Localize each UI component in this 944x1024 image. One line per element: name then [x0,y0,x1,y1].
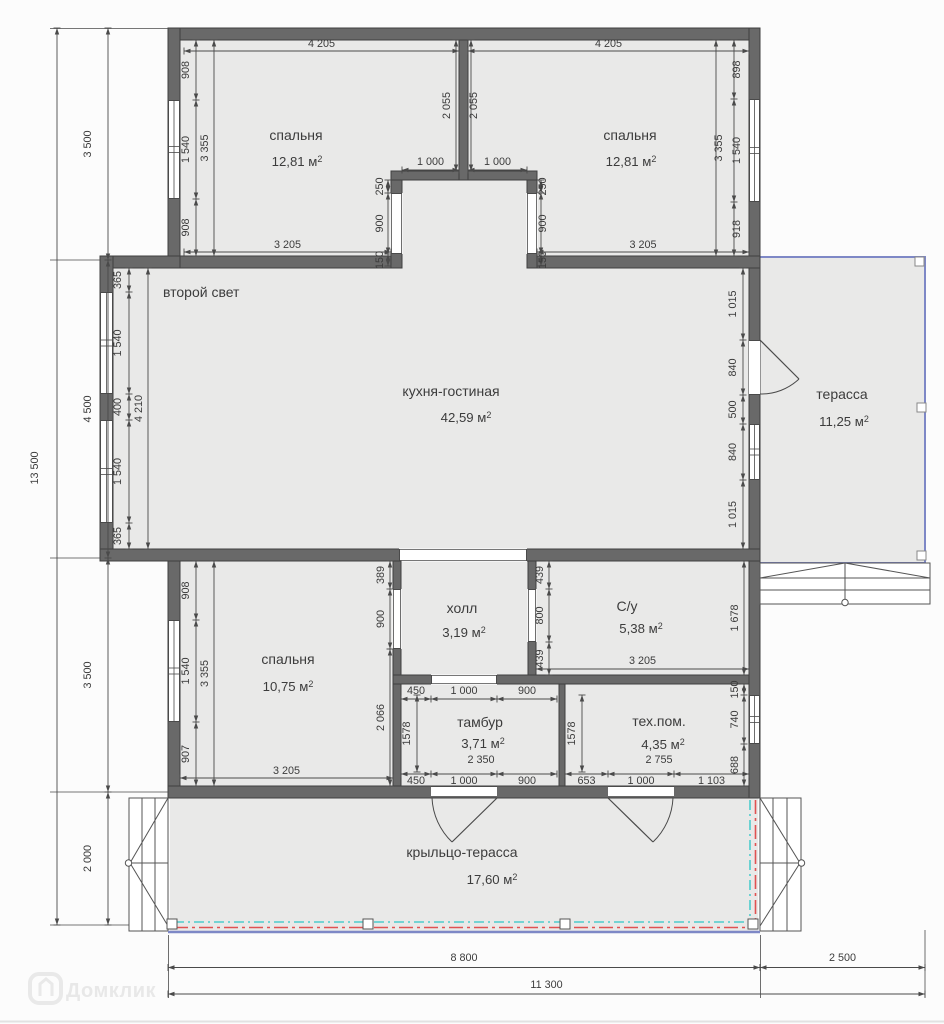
svg-text:3 355: 3 355 [713,134,725,161]
svg-text:2 350: 2 350 [467,754,494,766]
svg-text:4 205: 4 205 [595,38,622,50]
svg-text:898: 898 [731,60,743,78]
svg-text:1 103: 1 103 [698,775,725,787]
svg-text:12,81 м2: 12,81 м2 [272,154,323,169]
svg-text:2 755: 2 755 [645,754,672,766]
svg-text:907: 907 [180,745,192,763]
svg-text:4 205: 4 205 [308,38,335,50]
svg-text:5,38 м2: 5,38 м2 [619,621,662,636]
svg-text:800: 800 [534,606,546,624]
svg-text:150: 150 [374,251,386,269]
svg-text:3 355: 3 355 [199,134,211,161]
svg-text:1 678: 1 678 [729,604,741,631]
svg-text:10,75 м2: 10,75 м2 [263,679,314,694]
svg-text:3 500: 3 500 [82,130,94,157]
svg-text:17,60 м2: 17,60 м2 [467,872,518,887]
svg-text:спальня: спальня [261,651,314,667]
svg-text:2 055: 2 055 [468,92,480,119]
svg-text:908: 908 [180,581,192,599]
svg-text:крыльцо-терасса: крыльцо-терасса [406,844,517,860]
svg-text:тамбур: тамбур [457,714,503,730]
svg-text:1 000: 1 000 [450,775,477,787]
svg-text:1 000: 1 000 [627,775,654,787]
svg-text:365: 365 [112,527,124,545]
svg-text:12,81 м2: 12,81 м2 [606,154,657,169]
svg-text:3,71 м2: 3,71 м2 [461,736,504,751]
svg-text:908: 908 [180,218,192,236]
svg-text:1 000: 1 000 [450,685,477,697]
svg-text:365: 365 [112,271,124,289]
svg-text:Домклик: Домклик [66,980,156,1002]
svg-text:908: 908 [180,61,192,79]
svg-text:150: 150 [729,680,741,698]
svg-text:439: 439 [534,566,546,584]
svg-text:2 066: 2 066 [375,704,387,731]
svg-text:389: 389 [375,566,387,584]
svg-text:1578: 1578 [566,721,578,745]
svg-text:11,25 м2: 11,25 м2 [819,414,869,429]
svg-text:450: 450 [407,775,425,787]
svg-text:1 000: 1 000 [484,156,511,168]
svg-text:900: 900 [537,214,549,232]
svg-text:653: 653 [577,775,595,787]
svg-text:900: 900 [374,214,386,232]
svg-text:3 500: 3 500 [82,661,94,688]
svg-text:3 205: 3 205 [274,239,301,251]
svg-text:спальня: спальня [269,127,322,143]
svg-text:второй свет: второй свет [163,284,240,300]
svg-text:1 015: 1 015 [727,501,739,528]
svg-text:900: 900 [375,610,387,628]
svg-text:3 205: 3 205 [629,655,656,667]
svg-text:тех.пом.: тех.пом. [632,713,686,729]
svg-text:42,59 м2: 42,59 м2 [441,410,492,425]
svg-text:1 000: 1 000 [417,156,444,168]
svg-text:1 540: 1 540 [112,329,124,356]
svg-text:840: 840 [727,443,739,461]
svg-text:1 015: 1 015 [727,290,739,317]
svg-text:кухня-гостиная: кухня-гостиная [402,383,499,399]
svg-text:3,19 м2: 3,19 м2 [442,625,485,640]
svg-text:3 205: 3 205 [273,765,300,777]
svg-text:1 540: 1 540 [180,657,192,684]
svg-text:3 355: 3 355 [199,660,211,687]
svg-text:11 300: 11 300 [530,979,562,991]
svg-text:спальня: спальня [603,127,656,143]
svg-text:2 000: 2 000 [82,845,94,872]
svg-text:2 055: 2 055 [441,92,453,119]
svg-text:терасса: терасса [816,386,868,402]
svg-text:4,35 м2: 4,35 м2 [641,737,684,752]
svg-text:840: 840 [727,358,739,376]
svg-text:688: 688 [729,756,741,774]
svg-text:8 800: 8 800 [450,952,477,964]
svg-text:С/у: С/у [617,598,638,614]
svg-text:918: 918 [731,220,743,238]
svg-text:500: 500 [727,400,739,418]
svg-text:1578: 1578 [401,721,413,745]
svg-text:1 540: 1 540 [180,136,192,163]
svg-text:400: 400 [112,398,124,416]
svg-text:2 500: 2 500 [829,952,856,964]
svg-text:13 500: 13 500 [29,451,41,484]
svg-text:900: 900 [518,775,536,787]
svg-text:740: 740 [729,710,741,728]
svg-text:439: 439 [534,649,546,667]
svg-text:250: 250 [374,177,386,195]
svg-text:4 500: 4 500 [82,395,94,422]
svg-text:250: 250 [537,177,549,195]
svg-text:900: 900 [518,685,536,697]
svg-text:3 205: 3 205 [629,239,656,251]
svg-text:4 210: 4 210 [133,395,145,422]
svg-text:1 540: 1 540 [112,458,124,485]
svg-text:холл: холл [447,600,478,616]
svg-text:1 540: 1 540 [731,137,743,164]
